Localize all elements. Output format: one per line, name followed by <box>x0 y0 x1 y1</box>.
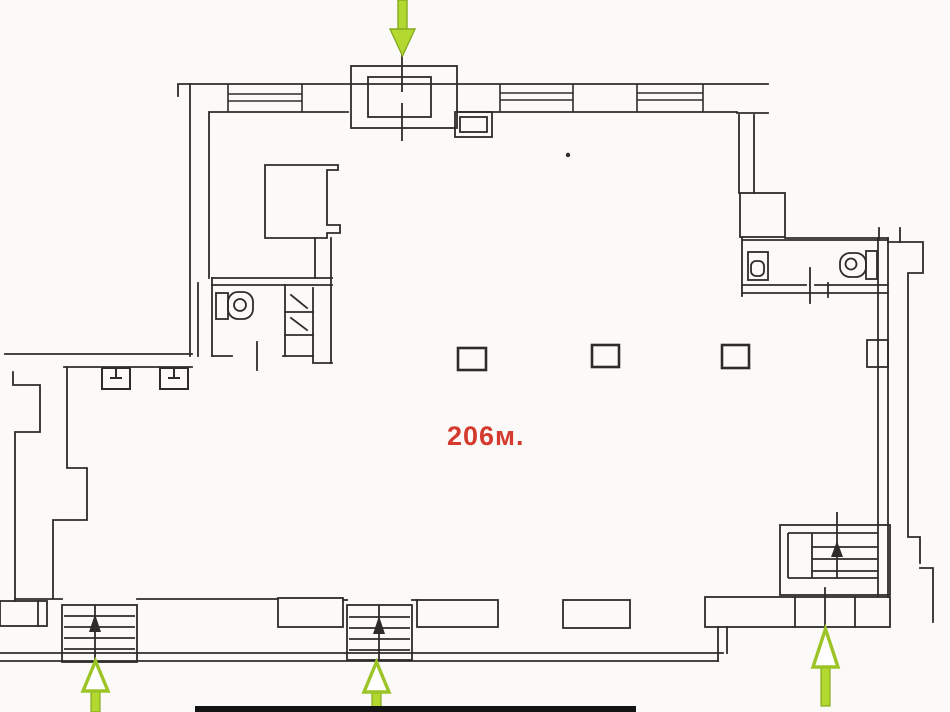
top-entrance-vestibule <box>351 55 492 141</box>
stairs-icon-bottom-center <box>347 605 412 660</box>
sink-icon-right-wc <box>748 252 768 280</box>
entrance-arrow-bottom-left-icon <box>83 661 108 712</box>
floor-plan-page: 206м. <box>0 0 950 712</box>
walls <box>0 84 933 661</box>
toilet-icon-right-wc <box>840 251 877 279</box>
bottom-black-bar <box>195 706 636 712</box>
wall-fixture-boxes <box>102 368 188 389</box>
column-markers <box>458 345 749 370</box>
toilet-icon-left-wc <box>216 292 253 319</box>
area-label: 206м. <box>447 421 525 452</box>
entrance-arrow-bottom-right-icon <box>813 629 838 706</box>
windows <box>228 84 703 112</box>
entrance-arrow-top-icon <box>390 0 415 56</box>
ceiling-dot <box>566 153 570 157</box>
entrance-arrow-bottom-center-icon <box>364 662 389 712</box>
stairs-icon-bottom-right <box>780 512 890 595</box>
floor-plan-drawing <box>0 0 950 712</box>
